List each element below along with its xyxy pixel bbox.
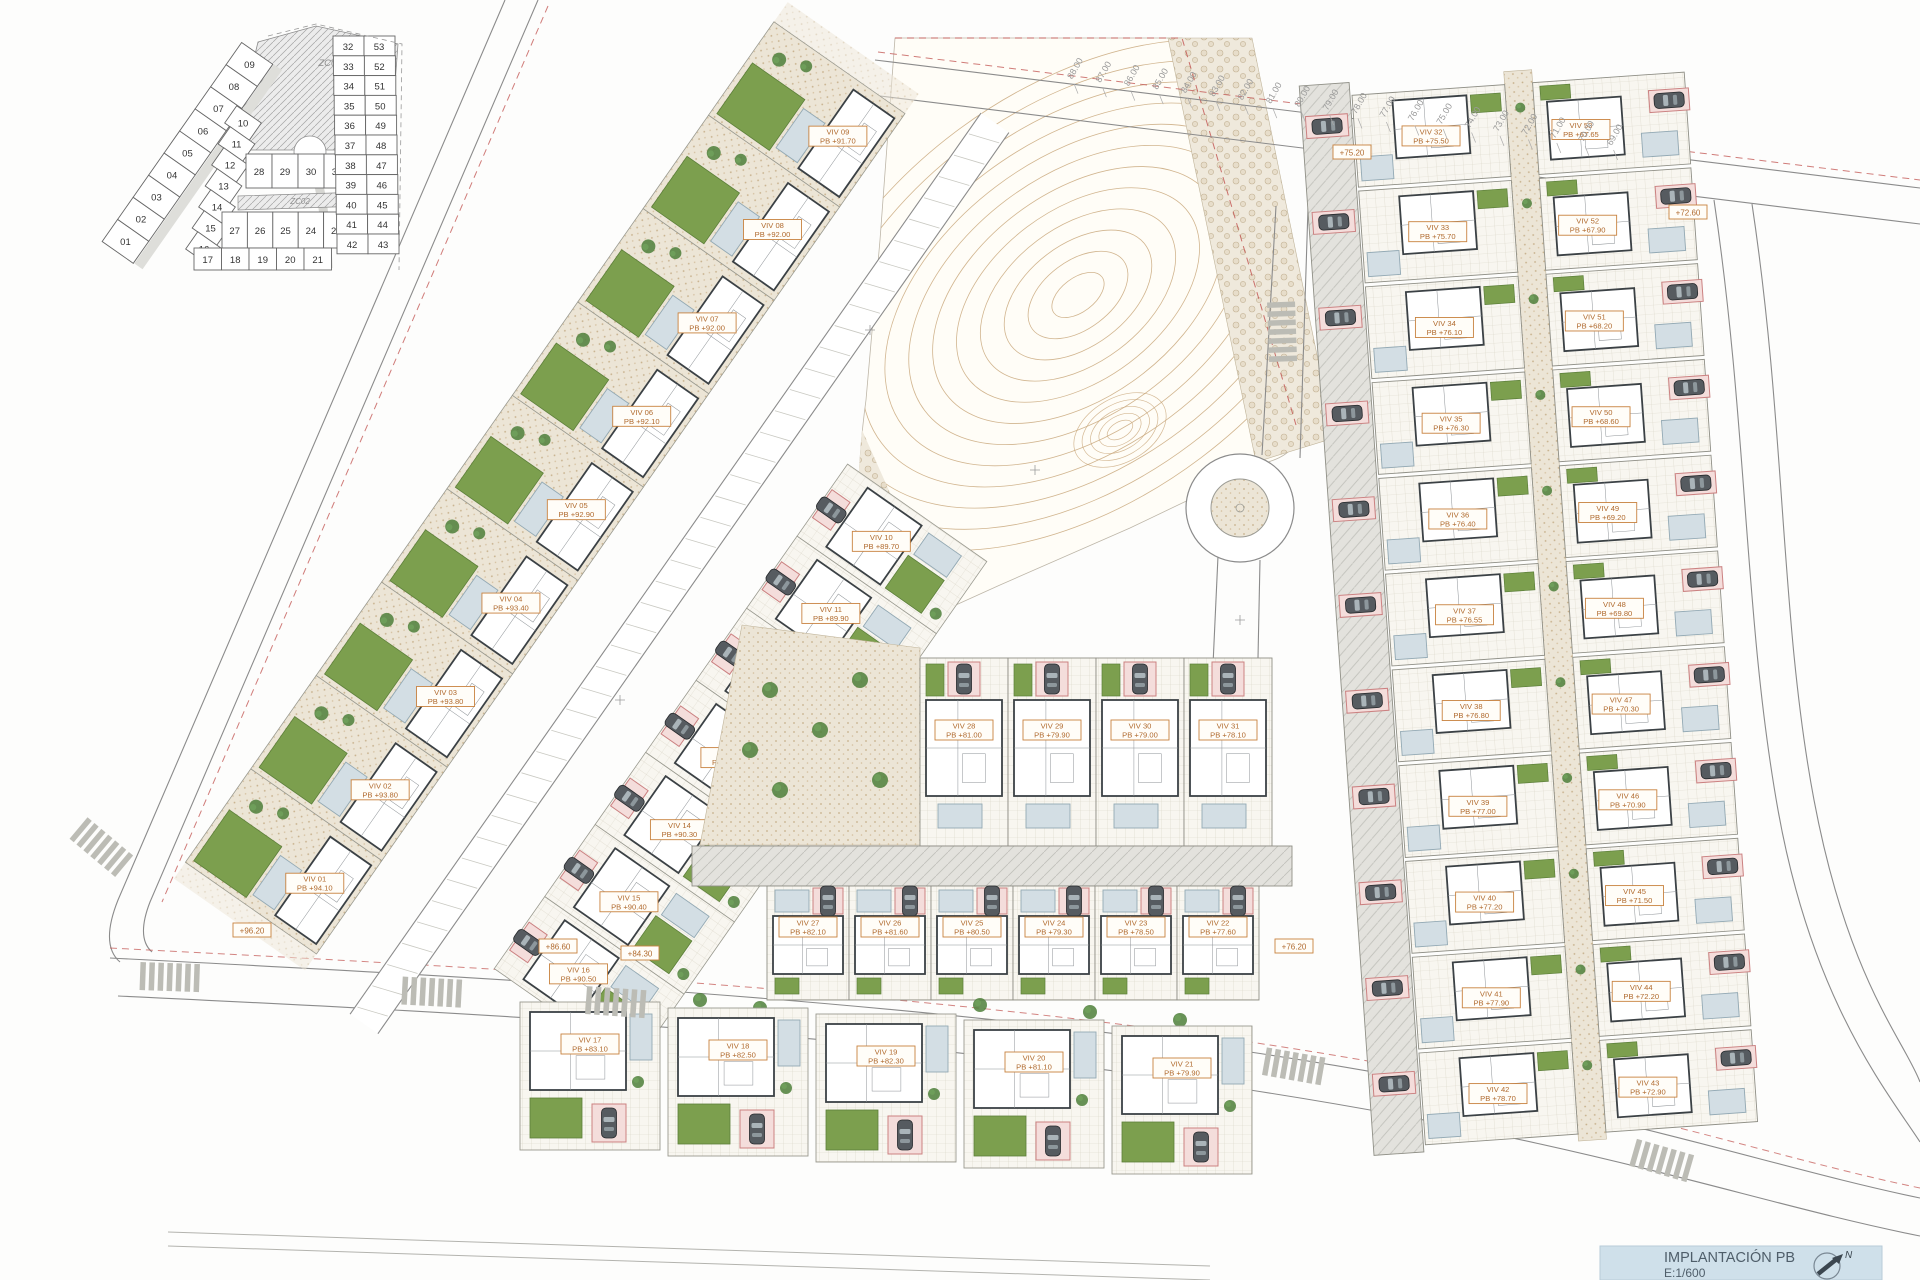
tree-icon [872,772,888,788]
east-villa-strip: VIV 32PB +75.50VIV 53PB +67.65VIV 33PB +… [1299,59,1761,1155]
villa-label: VIV 45PB +71.50 [1606,886,1664,906]
townhouse-unit: VIV 29PB +79.90 [1008,658,1096,846]
spot-level: +72.60 [1669,205,1707,219]
svg-text:PB +76.10: PB +76.10 [1427,328,1463,337]
parked-car-icon [1707,858,1738,875]
keyplan-zc02-label: ZC02 [289,197,310,206]
svg-text:VIV 05: VIV 05 [565,501,588,510]
svg-text:PB +94.10: PB +94.10 [297,884,333,893]
keyplan-plot-number: 50 [375,101,386,112]
svg-text:VIV 25: VIV 25 [961,919,984,928]
villa-label: VIV 32PB +75.50 [1402,126,1460,146]
villa-label: VIV 22PB +77.60 [1189,917,1247,937]
parked-car-icon [985,886,1000,916]
svg-text:VIV 49: VIV 49 [1596,504,1619,513]
tree-icon [772,782,788,798]
villa-label: VIV 50PB +68.60 [1572,407,1630,427]
parked-car-icon [1674,379,1705,396]
villa-plot: VIV 45PB +71.50 [1586,838,1747,941]
building-footprint [1190,700,1266,796]
villa-label: VIV 42PB +78.70 [1469,1084,1527,1104]
tree-icon [1173,1013,1187,1027]
svg-text:VIV 51: VIV 51 [1583,312,1606,321]
parked-car-icon [903,886,918,916]
svg-text:VIV 30: VIV 30 [1129,722,1152,731]
drawing-title: IMPLANTACIÓN PB [1664,1249,1795,1266]
villa-label: VIV 14PB +90.30 [650,820,708,840]
villa-label: VIV 51PB +68.20 [1565,311,1623,331]
svg-text:VIV 41: VIV 41 [1480,989,1503,998]
svg-text:VIV 20: VIV 20 [1023,1054,1046,1063]
keyplan-plot-number: 17 [202,255,213,266]
svg-text:VIV 24: VIV 24 [1043,919,1066,928]
townhouse-unit: VIV 25PB +80.50 [931,886,1013,1000]
svg-text:PB +76.55: PB +76.55 [1447,615,1483,624]
parked-car-icon [1654,92,1685,109]
parked-car-icon [1714,954,1745,971]
svg-text:+86.60: +86.60 [546,943,571,952]
villa-label: VIV 25PB +80.50 [943,917,1001,937]
site-plan-drawing: VIV 01PB +94.10VIV 02PB +93.80VIV 03PB +… [0,0,1920,1280]
keyplan-plot-number: 45 [377,200,388,211]
svg-text:PB +68.60: PB +68.60 [1583,417,1619,426]
keyplan-plot-number: 52 [374,62,385,73]
villa-label: VIV 28PB +81.00 [935,720,993,740]
keyplan-plot-number: 43 [378,240,389,251]
svg-text:PB +93.80: PB +93.80 [428,697,464,706]
villa-label: VIV 16PB +90.50 [549,964,607,984]
parked-car-icon [1379,1075,1410,1092]
villa-label: VIV 08PB +92.00 [743,220,801,240]
svg-text:VIV 29: VIV 29 [1041,722,1064,731]
svg-text:PB +92.90: PB +92.90 [558,510,594,519]
svg-text:PB +82.10: PB +82.10 [790,928,826,937]
tree-icon [693,993,707,1007]
svg-text:PB +80.50: PB +80.50 [954,928,990,937]
tree-icon [1224,1100,1236,1112]
tree-icon [973,998,987,1012]
villa-plot: VIV 21PB +79.90 [1112,1026,1252,1174]
villa-plot: VIV 47PB +70.30 [1573,646,1734,749]
svg-text:N: N [1845,1250,1853,1261]
svg-text:PB +93.40: PB +93.40 [493,604,529,613]
keyplan-plot-number: 35 [344,101,355,112]
parked-car-icon [1045,664,1060,694]
svg-text:PB +81.60: PB +81.60 [872,928,908,937]
crosswalk [140,962,200,992]
villa-label: VIV 04PB +93.40 [482,593,540,613]
townhouse-unit: VIV 27PB +82.10 [767,886,849,1000]
parked-car-icon [602,1108,617,1138]
svg-text:PB +77.00: PB +77.00 [1460,807,1496,816]
svg-text:PB +76.80: PB +76.80 [1453,711,1489,720]
villa-label: VIV 35PB +76.30 [1422,413,1480,433]
keyplan-plot-number: 25 [280,226,291,237]
villa-label: VIV 15PB +90.40 [600,892,658,912]
keyplan-plot-number: 06 [198,126,209,137]
villa-label: VIV 24PB +79.30 [1025,917,1083,937]
villa-plot: VIV 51PB +68.20 [1546,263,1707,366]
svg-text:PB +90.40: PB +90.40 [611,902,647,911]
central-townhouse-cluster: VIV 28PB +81.00VIV 29PB +79.90VIV 30PB +… [692,625,1292,1027]
parked-car-icon [1332,405,1363,422]
keyplan-plot-number: 44 [377,220,388,231]
svg-text:PB +67.90: PB +67.90 [1570,226,1606,235]
svg-text:VIV 36: VIV 36 [1446,510,1469,519]
svg-text:VIV 34: VIV 34 [1433,319,1456,328]
townhouse-unit: VIV 30PB +79.00 [1096,658,1184,846]
svg-text:VIV 10: VIV 10 [870,533,893,542]
villa-plot: VIV 49PB +69.20 [1559,455,1720,558]
villa-plot: VIV 18PB +82.50 [668,1008,808,1156]
villa-label: VIV 11PB +89.90 [802,603,860,623]
svg-text:PB +78.50: PB +78.50 [1118,928,1154,937]
keyplan-plot-number: 15 [205,224,216,235]
villa-label: VIV 07PB +92.00 [678,313,736,333]
villa-label: VIV 10PB +89.70 [852,531,910,551]
svg-text:PB +75.50: PB +75.50 [1413,136,1449,145]
villa-label: VIV 34PB +76.10 [1415,317,1473,337]
svg-text:VIV 31: VIV 31 [1217,722,1240,731]
svg-text:PB +77.20: PB +77.20 [1467,903,1503,912]
tree-icon [780,1082,792,1094]
svg-text:VIV 26: VIV 26 [879,919,902,928]
parked-car-icon [1701,762,1732,779]
villa-plot: VIV 20PB +81.10 [964,1020,1104,1168]
parked-car-icon [1680,475,1711,492]
keyplan-plot-number: 42 [347,240,358,251]
svg-text:VIV 44: VIV 44 [1630,983,1653,992]
villa-label: VIV 19PB +82.30 [857,1046,915,1066]
svg-text:PB +91.70: PB +91.70 [820,137,856,146]
villa-label: VIV 39PB +77.00 [1449,796,1507,816]
svg-text:PB +75.70: PB +75.70 [1420,232,1456,241]
keyplan-plot-number: 28 [254,167,265,178]
svg-text:+96.20: +96.20 [240,927,265,936]
villa-plot: VIV 17PB +83.10 [520,1002,660,1150]
svg-text:VIV 22: VIV 22 [1207,919,1230,928]
svg-text:VIV 52: VIV 52 [1576,217,1599,226]
villa-plot: VIV 50PB +68.60 [1553,359,1714,462]
parked-car-icon [1345,596,1376,613]
keyplan-plot-number: 26 [255,226,266,237]
parked-car-icon [1365,884,1396,901]
svg-text:PB +78.10: PB +78.10 [1210,731,1246,740]
svg-text:VIV 06: VIV 06 [630,408,653,417]
svg-text:PB +71.50: PB +71.50 [1617,896,1653,905]
parked-car-icon [1194,1132,1209,1162]
spot-level: +96.20 [233,923,271,937]
svg-text:VIV 09: VIV 09 [826,128,849,137]
svg-text:PB +90.30: PB +90.30 [662,830,698,839]
svg-text:VIV 23: VIV 23 [1125,919,1148,928]
svg-text:+76.20: +76.20 [1282,943,1307,952]
crosswalk [1262,1047,1325,1085]
svg-text:VIV 17: VIV 17 [579,1036,602,1045]
parked-car-icon [1221,664,1236,694]
parked-car-icon [1318,213,1349,230]
keyplan-plot-number: 34 [344,82,355,93]
svg-text:PB +78.70: PB +78.70 [1480,1094,1516,1103]
keyplan-plot-number: 08 [229,82,240,93]
svg-text:VIV 27: VIV 27 [797,919,820,928]
keyplan-plot-number: 04 [167,171,178,182]
parked-car-icon [1352,692,1383,709]
villa-label: VIV 41PB +77.90 [1462,988,1520,1008]
svg-text:PB +77.60: PB +77.60 [1200,928,1236,937]
south-villa-row: VIV 17PB +83.10VIV 18PB +82.50VIV 19PB +… [520,1002,1252,1174]
road-edge [168,1246,1210,1280]
villa-label: VIV 29PB +79.90 [1023,720,1081,740]
svg-text:+75.20: +75.20 [1340,149,1365,158]
keyplan-plot-number: 09 [244,60,255,71]
road-edge [1752,204,1920,1082]
crosswalk [70,817,134,877]
svg-text:PB +92.00: PB +92.00 [755,230,791,239]
keyplan-plot-number: 02 [136,215,147,226]
villa-label: VIV 18PB +82.50 [709,1040,767,1060]
keyplan-plot-number: 01 [120,237,131,248]
svg-text:PB +89.70: PB +89.70 [863,542,899,551]
parked-car-icon [1687,571,1718,588]
title-block: IMPLANTACIÓN PB E:1/600 N [1600,1246,1882,1280]
villa-label: VIV 05PB +92.90 [547,500,605,520]
keyplan-plot-number: 36 [344,121,355,132]
keyplan-plot-number: 49 [375,121,386,132]
svg-text:PB +69.20: PB +69.20 [1590,513,1626,522]
parked-car-icon [821,886,836,916]
svg-text:PB +89.90: PB +89.90 [813,614,849,623]
keyplan-plot-number: 13 [218,182,229,193]
svg-text:PB +81.00: PB +81.00 [946,731,982,740]
svg-text:PB +79.00: PB +79.00 [1122,731,1158,740]
keyplan-plot-number: 40 [346,200,357,211]
svg-text:VIV 33: VIV 33 [1426,223,1449,232]
svg-text:VIV 43: VIV 43 [1637,1079,1660,1088]
spot-level: +86.60 [539,939,577,953]
svg-text:VIV 39: VIV 39 [1467,798,1490,807]
svg-text:VIV 47: VIV 47 [1610,696,1633,705]
svg-text:VIV 42: VIV 42 [1487,1085,1510,1094]
keyplan-plot-number: 11 [232,140,242,151]
svg-text:VIV 15: VIV 15 [618,893,641,902]
keyplan-plot-number: 30 [306,167,317,178]
svg-text:PB +79.90: PB +79.90 [1164,1069,1200,1078]
townhouse-unit: VIV 23PB +78.50 [1095,886,1177,1000]
svg-text:PB +81.10: PB +81.10 [1016,1063,1052,1072]
villa-label: VIV 27PB +82.10 [779,917,837,937]
svg-text:PB +90.50: PB +90.50 [561,974,597,983]
villa-label: VIV 43PB +72.90 [1619,1077,1677,1097]
keyplan-plot-number: 07 [213,104,224,115]
svg-text:PB +69.80: PB +69.80 [1597,609,1633,618]
cluster-driveway [692,846,1292,886]
townhouse-unit: VIV 31PB +78.10 [1184,658,1272,846]
townhouse-unit: VIV 28PB +81.00 [920,658,1008,846]
villa-label: VIV 49PB +69.20 [1579,503,1637,523]
svg-text:VIV 38: VIV 38 [1460,702,1483,711]
villa-label: VIV 52PB +67.90 [1559,215,1617,235]
keyplan-plot-number: 21 [312,255,323,266]
svg-text:VIV 45: VIV 45 [1623,887,1646,896]
svg-text:VIV 32: VIV 32 [1420,127,1443,136]
villa-label: VIV 09PB +91.70 [809,126,867,146]
keyplan-plot-number: 37 [345,141,356,152]
keyplan-plot-number: 32 [343,42,354,53]
parked-car-icon [1358,788,1389,805]
tree-icon [762,682,778,698]
parked-car-icon [1149,886,1164,916]
svg-text:VIV 11: VIV 11 [820,605,842,614]
keyplan-plot-number: 41 [346,220,357,231]
keyplan-plot-number: 27 [229,226,240,237]
svg-text:VIV 19: VIV 19 [875,1048,898,1057]
parked-car-icon [1660,187,1691,204]
keyplan-plot-number: 20 [285,255,296,266]
svg-text:VIV 16: VIV 16 [567,965,590,974]
svg-text:VIV 37: VIV 37 [1453,606,1476,615]
villa-plot: VIV 43PB +72.90 [1600,1030,1761,1133]
villa-label: VIV 06PB +92.10 [613,406,671,426]
parked-car-icon [750,1114,765,1144]
svg-text:+72.60: +72.60 [1676,209,1701,218]
villa-label: VIV 02PB +93.80 [351,780,409,800]
keyplan-plot-number: 24 [306,226,317,237]
building-footprint [1102,700,1178,796]
svg-text:PB +77.90: PB +77.90 [1473,998,1509,1007]
building-footprint [926,700,1002,796]
svg-text:VIV 02: VIV 02 [369,781,392,790]
villa-label: VIV 20PB +81.10 [1005,1052,1063,1072]
svg-text:PB +79.90: PB +79.90 [1034,731,1070,740]
villa-plot: VIV 48PB +69.80 [1566,551,1727,654]
tree-icon [742,742,758,758]
svg-text:VIV 07: VIV 07 [696,314,719,323]
villa-label: VIV 48PB +69.80 [1585,598,1643,618]
svg-text:VIV 21: VIV 21 [1171,1060,1194,1069]
parked-car-icon [1338,501,1369,518]
keyplan-plot-number: 47 [376,161,387,172]
villa-label: VIV 31PB +78.10 [1199,720,1257,740]
svg-text:PB +72.20: PB +72.20 [1623,992,1659,1001]
villa-label: VIV 46PB +70.90 [1599,790,1657,810]
svg-text:VIV 48: VIV 48 [1603,600,1626,609]
villa-label: VIV 03PB +93.80 [417,686,475,706]
villa-label: VIV 21PB +79.90 [1153,1058,1211,1078]
svg-text:PB +76.30: PB +76.30 [1433,424,1469,433]
svg-text:VIV 35: VIV 35 [1440,415,1463,424]
villa-label: VIV 23PB +78.50 [1107,917,1165,937]
building-footprint [1014,700,1090,796]
tree-icon [812,722,828,738]
parked-car-icon [1133,664,1148,694]
svg-text:PB +82.30: PB +82.30 [868,1057,904,1066]
keyplan-plot-number: 18 [230,255,241,266]
keyplan-plot-number: 48 [376,141,387,152]
keyplan-plot-number: 46 [377,181,388,192]
townhouse-unit: VIV 26PB +81.60 [849,886,931,1000]
villa-plot: VIV 46PB +70.90 [1579,742,1740,845]
svg-text:PB +92.00: PB +92.00 [689,323,725,332]
villa-label: VIV 38PB +76.80 [1442,701,1500,721]
svg-text:+84.30: +84.30 [628,950,653,959]
svg-text:PB +93.80: PB +93.80 [362,790,398,799]
svg-text:PB +70.90: PB +70.90 [1610,800,1646,809]
villa-label: VIV 37PB +76.55 [1436,605,1494,625]
tree-icon [1083,1005,1097,1019]
svg-text:PB +70.30: PB +70.30 [1603,705,1639,714]
svg-text:PB +92.10: PB +92.10 [624,417,660,426]
parked-car-icon [1667,283,1698,300]
svg-text:PB +83.10: PB +83.10 [572,1045,608,1054]
svg-text:PB +82.50: PB +82.50 [720,1051,756,1060]
east-strip-rotated: VIV 32PB +75.50VIV 53PB +67.65VIV 33PB +… [1299,59,1761,1155]
roundabout [1186,454,1294,562]
svg-text:VIV 08: VIV 08 [761,221,784,230]
keyplan-plot-number: 29 [280,167,291,178]
keyplan-plot-number: 14 [212,203,223,214]
townhouse-unit: VIV 24PB +79.30 [1013,886,1095,1000]
drawing-scale: E:1/600 [1664,1266,1706,1280]
villa-label: VIV 36PB +76.40 [1429,509,1487,529]
tree-icon [852,672,868,688]
villa-label: VIV 01PB +94.10 [286,873,344,893]
svg-text:PB +79.30: PB +79.30 [1036,928,1072,937]
tree-icon [928,1088,940,1100]
svg-text:PB +72.90: PB +72.90 [1630,1088,1666,1097]
drawing-sheet: VIV 01PB +94.10VIV 02PB +93.80VIV 03PB +… [0,0,1920,1280]
svg-text:VIV 28: VIV 28 [953,722,976,731]
survey-cross [615,695,625,705]
tree-icon [1076,1094,1088,1106]
parked-car-icon [1067,886,1082,916]
svg-text:VIV 18: VIV 18 [727,1042,750,1051]
keyplan-plot-number: 51 [375,82,386,93]
villa-plot: VIV 44PB +72.20 [1593,934,1754,1037]
tree-icon [632,1076,644,1088]
parked-car-icon [957,664,972,694]
parked-car-icon [1231,886,1246,916]
survey-cross [1235,615,1245,625]
parked-car-icon [1312,118,1343,135]
svg-text:VIV 46: VIV 46 [1616,791,1639,800]
svg-text:VIV 03: VIV 03 [434,688,457,697]
keyplan-plot-number: 33 [343,62,354,73]
villa-label: VIV 30PB +79.00 [1111,720,1169,740]
parked-car-icon [1046,1126,1061,1156]
spot-level: +75.20 [1333,145,1371,159]
key-plan: ZC01010203040506070809101112131415162829… [102,24,402,270]
parked-car-icon [898,1120,913,1150]
svg-text:VIV 14: VIV 14 [668,821,691,830]
villa-label: VIV 40PB +77.20 [1456,892,1514,912]
keyplan-plot-number: 03 [151,193,162,204]
villa-label: VIV 44PB +72.20 [1612,981,1670,1001]
villa-label: VIV 17PB +83.10 [561,1034,619,1054]
svg-text:VIV 04: VIV 04 [500,595,523,604]
parked-car-icon [1325,309,1356,326]
keyplan-plot-number: 05 [182,148,193,159]
keyplan-plot-number: 39 [346,181,357,192]
svg-text:VIV 50: VIV 50 [1590,408,1613,417]
parked-car-icon [1372,980,1403,997]
villa-label: VIV 33PB +75.70 [1409,222,1467,242]
parked-car-icon [1721,1049,1752,1066]
villa-label: VIV 26PB +81.60 [861,917,919,937]
keyplan-plot-number: 53 [374,42,385,53]
keyplan-plot-number: 38 [345,161,356,172]
villa-label: VIV 47PB +70.30 [1592,694,1650,714]
